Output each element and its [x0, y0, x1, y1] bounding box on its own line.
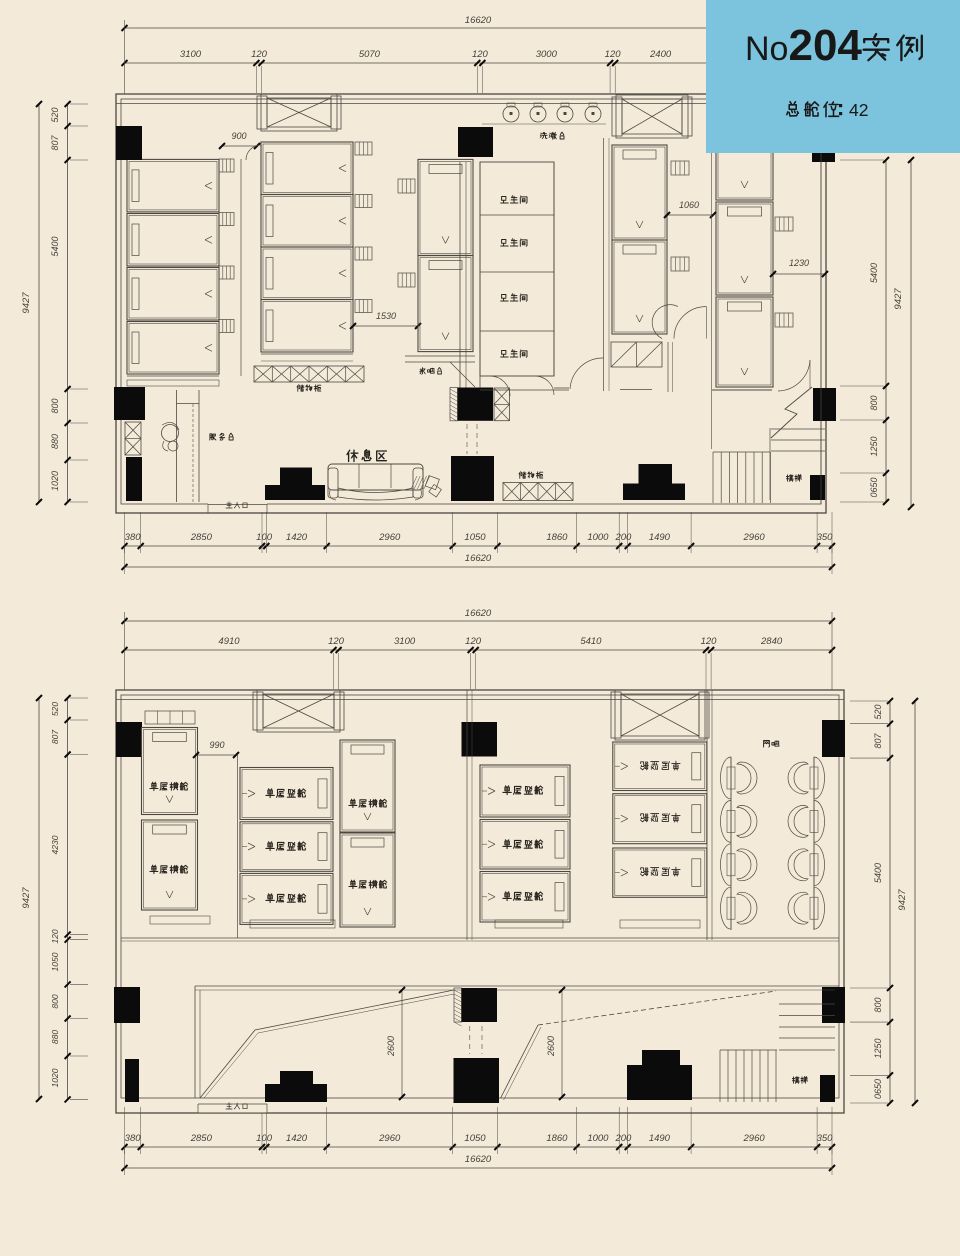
- svg-text:16620: 16620: [465, 1154, 492, 1165]
- svg-text:350: 350: [817, 1133, 834, 1144]
- svg-text:100: 100: [256, 532, 273, 543]
- svg-text:1860: 1860: [546, 1133, 568, 1144]
- svg-text:800: 800: [50, 994, 60, 1008]
- svg-text:520: 520: [50, 107, 60, 122]
- svg-text:2600: 2600: [546, 1036, 556, 1057]
- svg-text:1420: 1420: [286, 532, 308, 543]
- svg-text:2960: 2960: [743, 1133, 766, 1144]
- svg-text:807: 807: [873, 733, 883, 749]
- svg-text:2840: 2840: [760, 636, 783, 647]
- svg-text:800: 800: [50, 398, 60, 413]
- svg-text:880: 880: [50, 1030, 60, 1044]
- svg-text:1020: 1020: [50, 1068, 60, 1087]
- svg-text:800: 800: [869, 395, 879, 410]
- svg-text:1250: 1250: [869, 436, 879, 456]
- svg-text:120: 120: [605, 49, 622, 60]
- svg-text:1230: 1230: [789, 258, 809, 268]
- svg-text:1490: 1490: [649, 1133, 671, 1144]
- svg-text:9427: 9427: [897, 889, 908, 911]
- svg-text:807: 807: [50, 135, 60, 151]
- svg-text:380: 380: [125, 532, 142, 543]
- svg-text:807: 807: [50, 730, 60, 744]
- svg-text:120: 120: [251, 49, 268, 60]
- svg-text:1050: 1050: [464, 1133, 486, 1144]
- svg-text:350: 350: [817, 532, 834, 543]
- svg-text:1050: 1050: [464, 532, 486, 543]
- svg-text:1060: 1060: [679, 200, 699, 210]
- svg-text:2960: 2960: [743, 532, 766, 543]
- svg-text:120: 120: [50, 929, 60, 943]
- svg-text:200: 200: [614, 1133, 632, 1144]
- svg-text:0650: 0650: [869, 477, 879, 497]
- svg-text:2850: 2850: [190, 1133, 213, 1144]
- svg-text:5410: 5410: [580, 636, 602, 647]
- svg-text:5070: 5070: [359, 49, 381, 60]
- svg-text:380: 380: [125, 1133, 142, 1144]
- svg-text:120: 120: [328, 636, 345, 647]
- svg-text:2850: 2850: [190, 532, 213, 543]
- svg-text:16620: 16620: [465, 15, 492, 26]
- svg-text:5400: 5400: [50, 236, 60, 256]
- svg-text:3000: 3000: [536, 49, 558, 60]
- svg-text:1020: 1020: [50, 471, 60, 491]
- svg-text:200: 200: [614, 532, 632, 543]
- svg-text:1530: 1530: [376, 311, 396, 321]
- svg-text:1050: 1050: [50, 952, 60, 971]
- svg-text:100: 100: [256, 1133, 273, 1144]
- svg-text:900: 900: [231, 131, 246, 141]
- svg-text:16620: 16620: [465, 553, 492, 564]
- svg-text:800: 800: [873, 997, 883, 1012]
- svg-text:4230: 4230: [50, 835, 60, 854]
- svg-text:3100: 3100: [180, 49, 202, 60]
- svg-text:5400: 5400: [873, 863, 883, 883]
- svg-text:520: 520: [873, 704, 883, 719]
- svg-text:5400: 5400: [869, 263, 879, 283]
- svg-text:120: 120: [472, 49, 489, 60]
- svg-text:9427: 9427: [21, 292, 32, 314]
- svg-text:2960: 2960: [378, 532, 401, 543]
- svg-text:0650: 0650: [873, 1079, 883, 1099]
- svg-text:2400: 2400: [649, 49, 672, 60]
- svg-text:2600: 2600: [386, 1036, 396, 1057]
- svg-text:1860: 1860: [546, 532, 568, 543]
- svg-text:520: 520: [50, 702, 60, 716]
- svg-text:9427: 9427: [21, 887, 32, 909]
- svg-text:120: 120: [701, 636, 718, 647]
- svg-text:880: 880: [50, 434, 60, 449]
- svg-text:1000: 1000: [587, 532, 609, 543]
- svg-text:1000: 1000: [587, 1133, 609, 1144]
- svg-text:2960: 2960: [378, 1133, 401, 1144]
- svg-text:9427: 9427: [893, 288, 904, 310]
- svg-text:3100: 3100: [394, 636, 416, 647]
- svg-text:42: 42: [849, 100, 868, 120]
- svg-text:16620: 16620: [465, 608, 492, 619]
- svg-text:4910: 4910: [218, 636, 240, 647]
- svg-text:990: 990: [209, 740, 224, 750]
- svg-text:1420: 1420: [286, 1133, 308, 1144]
- svg-text:1490: 1490: [649, 532, 671, 543]
- svg-text:1250: 1250: [873, 1038, 883, 1058]
- svg-text:120: 120: [465, 636, 482, 647]
